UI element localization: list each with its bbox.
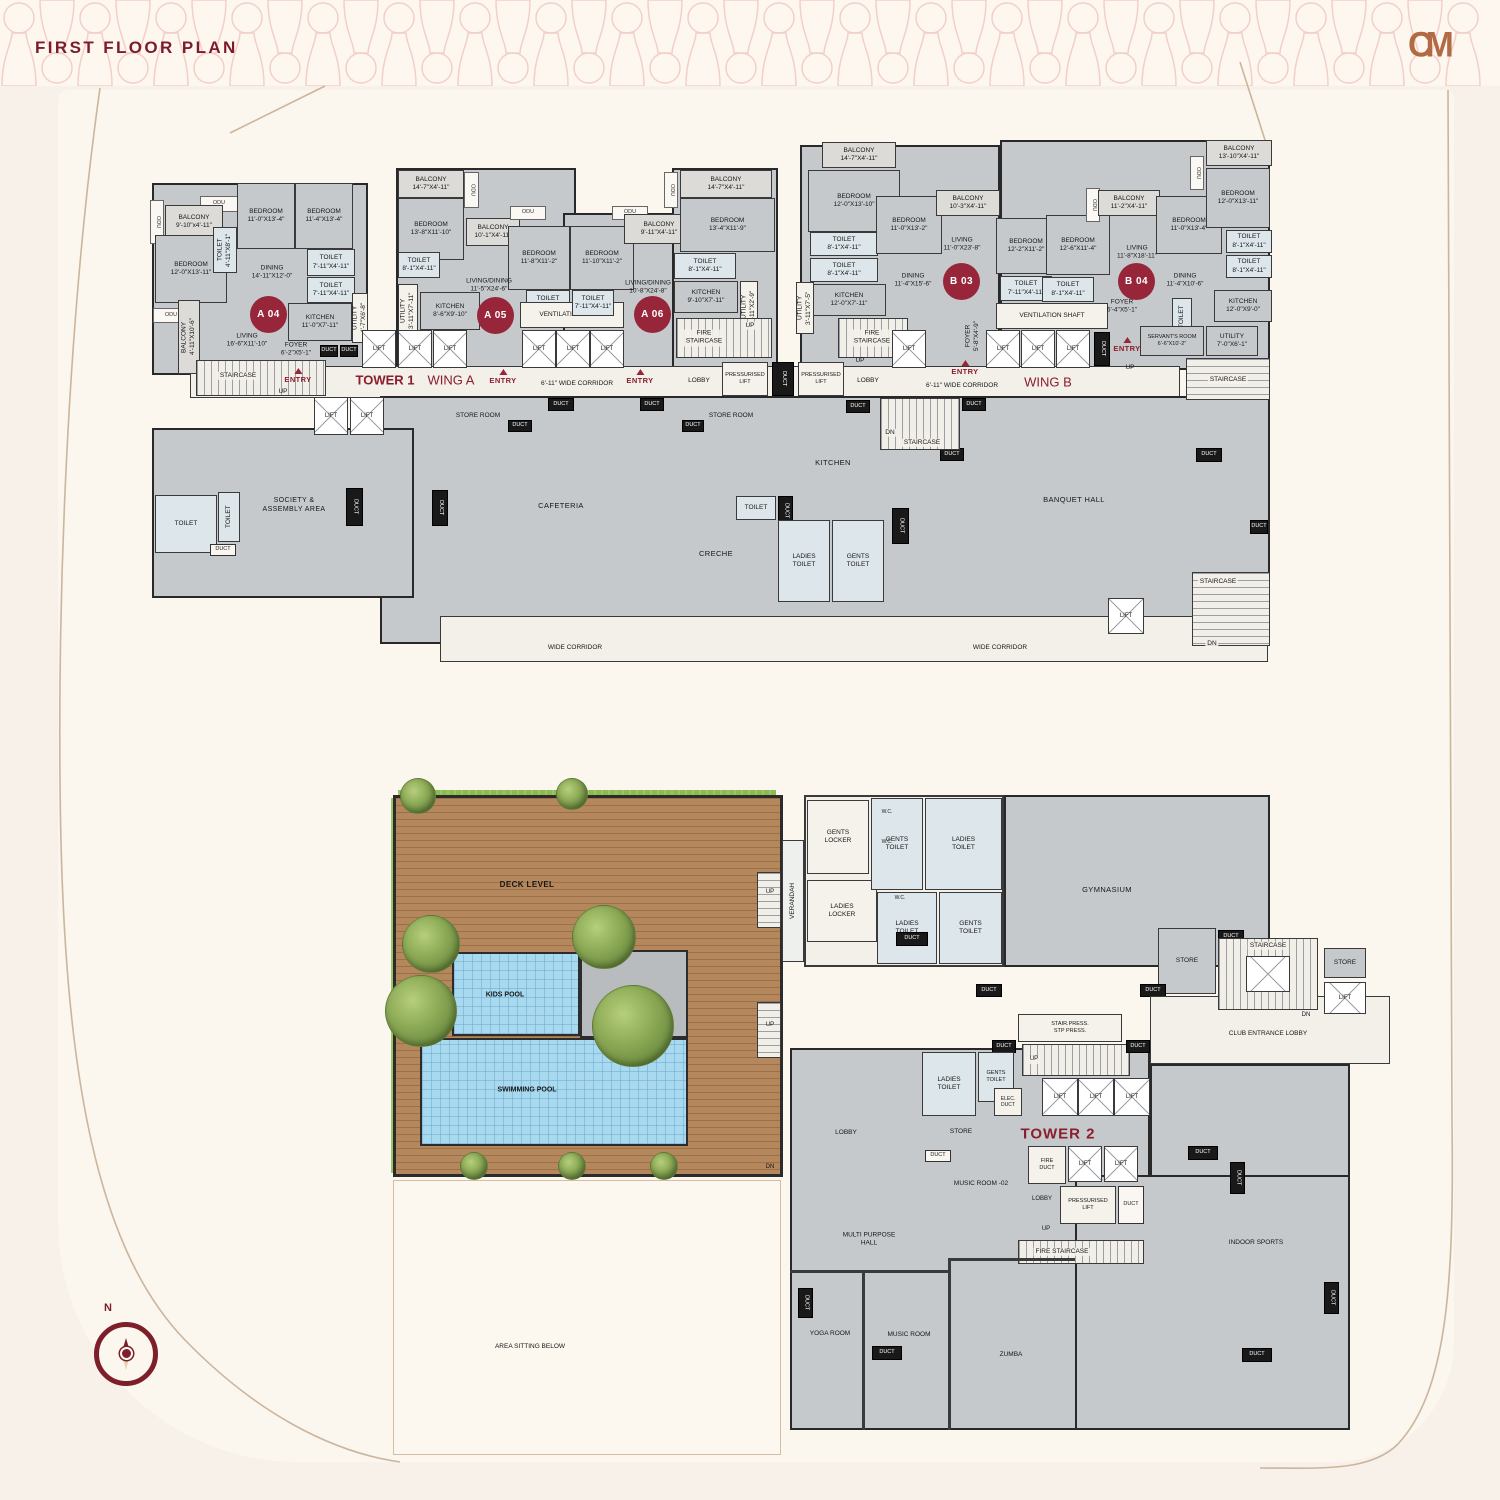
fire-staircase-label: FIRE STAIRCASE — [852, 330, 892, 347]
dn-label: DN — [883, 429, 896, 437]
lift-label: LIFT — [325, 413, 337, 419]
lift: LIFT — [1042, 1078, 1078, 1116]
fire-staircase-label: FIRE STAIRCASE — [684, 330, 724, 347]
lift: LIFT — [1324, 982, 1366, 1014]
wc-label: W.C. — [882, 809, 893, 816]
duct: DUCT — [1250, 520, 1268, 534]
a06-toilet-1: TOILET 7'-11"X4'-11" — [572, 290, 614, 316]
b03-dining: DINING 11'-4"X15'-6" — [895, 273, 932, 290]
b03-toilet-1: TOILET 8'-1"X4'-11" — [810, 232, 878, 256]
entry-arrow-icon — [1123, 337, 1131, 343]
up-label: UP — [766, 889, 774, 897]
tree — [402, 915, 460, 973]
ladies-toilet-1: LADIES TOILET — [925, 798, 1002, 890]
b04-toilet-4: TOILET 8'-1"X4'-11" — [1226, 255, 1272, 278]
lift-label: LIFT — [1090, 1094, 1102, 1100]
ladies-toilet-2: LADIES TOILET — [877, 892, 937, 964]
b04-bedroom-4: BEDROOM 12'-0"X13'-11" — [1206, 168, 1270, 228]
lift: LIFT — [892, 330, 926, 368]
duct: DUCT — [1094, 332, 1110, 366]
banquet-hall: BANQUET HALL — [1043, 495, 1105, 505]
gym-store: STORE — [1158, 928, 1216, 994]
swimming-pool-label: SWIMMING POOL — [497, 1085, 556, 1094]
wide-corridor-label: WIDE CORRIDOR — [548, 644, 602, 652]
gents-toilet-common: GENTS TOILET — [832, 520, 884, 602]
kitchen-common: KITCHEN — [815, 458, 851, 468]
a05-toilet-1: TOILET 8'-1"X4'-11" — [398, 252, 440, 278]
tree — [556, 778, 588, 810]
duct: DUCT — [1188, 1146, 1218, 1160]
corridor-b-label: 6'-11" WIDE CORRIDOR — [926, 382, 998, 390]
lift: LIFT — [1104, 1146, 1138, 1182]
kids-pool-label: KIDS POOL — [486, 990, 525, 999]
tree — [400, 778, 436, 814]
a04-foyer: FOYER 6'-2"X5'-1" — [281, 342, 311, 359]
unit-badge-b03: B 03 — [943, 263, 980, 300]
b03-kitchen: KITCHEN 12'-0"X7'-11" — [812, 284, 886, 316]
a06-balcony-2: BALCONY 14'-7"X4'-11" — [680, 170, 772, 198]
lift: LIFT — [1078, 1078, 1114, 1116]
lift: LIFT — [1068, 1146, 1102, 1182]
entry-marker: ENTRY — [626, 369, 653, 385]
a04-bedroom-1: BEDROOM 11'-0"X13'-4" — [237, 183, 295, 249]
store-room-1: STORE ROOM — [456, 412, 500, 420]
b03-toilet-2: TOILET 8'-1"X4'-11" — [810, 258, 878, 282]
up-label: UP — [766, 1022, 774, 1030]
duct: DUCT — [896, 932, 928, 946]
lift-label: LIFT — [1054, 1094, 1066, 1100]
creche: CRECHE — [699, 549, 733, 559]
duct: DUCT — [772, 362, 794, 396]
lift: LIFT — [350, 397, 384, 435]
b03-balcony-2: BALCONY 10'-3"X4'-11" — [936, 190, 1000, 216]
lift: LIFT — [556, 330, 590, 368]
a06-kitchen: KITCHEN 9'-10"X7'-11" — [674, 281, 738, 313]
entry-label: ENTRY — [284, 375, 311, 384]
b03-living: LIVING 11'-0"X23'-8" — [944, 237, 981, 254]
area-sitting-below — [393, 1180, 781, 1455]
store-label: STORE — [950, 1128, 972, 1136]
stair-press-box: STAIR.PRESS. STP PRESS. — [1018, 1014, 1122, 1042]
a04-toilet-1: TOILET 4'-11"X8'-1" — [213, 227, 237, 273]
b04-kitchen: KITCHEN 12'-0"X9'-0" — [1214, 290, 1272, 322]
up-label: UP — [1125, 364, 1134, 372]
b04-toilet-1: TOILET 8'-1"X4'-11" — [1042, 277, 1094, 302]
club-stair-core — [1246, 956, 1290, 992]
lift: LIFT — [1114, 1078, 1150, 1116]
duct: DUCT — [892, 508, 909, 544]
b04-balcony-1: BALCONY 11'-2"X4'-11" — [1098, 190, 1160, 216]
wide-corridor-label: WIDE CORRIDOR — [973, 644, 1027, 652]
lift-label: LIFT — [373, 346, 385, 352]
lift-label: LIFT — [567, 346, 579, 352]
a04-toilet-2: TOILET 7'-11"X4'-11" — [307, 249, 355, 276]
lift: LIFT — [398, 330, 432, 368]
wall — [948, 1258, 1075, 1261]
lobby-label: LOBBY — [857, 377, 879, 385]
common-toilet-2: TOILET — [218, 492, 240, 542]
duct: DUCT — [432, 490, 448, 526]
lift-label: LIFT — [1339, 995, 1351, 1001]
lift: LIFT — [1056, 330, 1090, 368]
area-sitting-below-label: AREA SITTING BELOW — [495, 1343, 565, 1351]
entry-marker: ENTRY — [284, 368, 311, 384]
a05-balcony-1: BALCONY 14'-7"X4'-11" — [398, 170, 464, 198]
lift-label: LIFT — [601, 346, 613, 352]
duct: DUCT — [508, 420, 532, 432]
staircase-label: STAIRCASE — [1248, 942, 1288, 950]
yoga-room: YOGA ROOM — [810, 1330, 850, 1338]
b04-foyer: FOYER 6'-4"X5'-1" — [1107, 299, 1137, 316]
a05-bedroom-2: BEDROOM 11'-8"X11'-2" — [508, 226, 570, 290]
entry-marker: ENTRY — [489, 369, 516, 385]
lift-label: LIFT — [409, 346, 421, 352]
gymnasium-label: GYMNASIUM — [1082, 885, 1132, 895]
up-label: UP — [855, 357, 864, 365]
lift: LIFT — [522, 330, 556, 368]
b04-balcony-2: BALCONY 13'-10"X4'-11" — [1206, 140, 1272, 166]
a05-bedroom-1: BEDROOM 13'-8"X11'-10" — [398, 198, 464, 260]
duct: DUCT — [640, 398, 664, 411]
lift-label: LIFT — [361, 413, 373, 419]
up-label: UP — [278, 388, 287, 396]
gents-toilet-2: GENTS TOILET — [939, 892, 1002, 964]
duct: DUCT — [346, 488, 363, 526]
ladies-toilet-common: LADIES TOILET — [778, 520, 830, 602]
page-title: FIRST FLOOR PLAN — [35, 38, 238, 58]
lift-label: LIFT — [903, 346, 915, 352]
odu-unit: ODU — [510, 206, 546, 220]
duct: DUCT — [976, 984, 1002, 997]
b04-bedroom-1: BEDROOM 12'-6"X11'-4" — [1046, 215, 1110, 275]
indoor-sports: INDOOR SPORTS — [1229, 1239, 1283, 1247]
common-toilet: TOILET — [155, 495, 217, 553]
cm-logo-monogram: CM — [1408, 25, 1447, 66]
tree — [460, 1152, 488, 1180]
odu-unit: ODU — [1190, 156, 1204, 190]
multi-purpose-hall: MULTI PURPOSE HALL — [843, 1232, 896, 1249]
dn-label: DN — [1205, 640, 1218, 648]
duct: DUCT — [548, 398, 574, 411]
ladies-locker: LADIES LOCKER — [807, 880, 877, 942]
duct: DUCT — [1126, 1040, 1150, 1053]
wc-label: W.C. — [882, 839, 893, 846]
wc-label: W.C. — [895, 895, 906, 902]
lobby-label: LOBBY — [688, 377, 710, 385]
up-label: UP — [743, 322, 756, 330]
t2-ladies-toilet: LADIES TOILET — [922, 1052, 976, 1116]
wing-a-label: WING A — [428, 373, 475, 390]
club-entrance-lobby: CLUB ENTRANCE LOBBY — [1229, 1030, 1307, 1038]
tree — [592, 985, 674, 1067]
a06-living-dining: LIVING/DINING 10'-8"X24'-8" — [625, 280, 671, 297]
b04-utility: UTILITY 7'-0"X6'-1" — [1206, 326, 1258, 356]
entry-label: ENTRY — [1113, 344, 1140, 353]
entry-arrow-icon — [294, 368, 302, 374]
duct: DUCT — [846, 400, 870, 413]
lift-label: LIFT — [533, 346, 545, 352]
entry-marker: ENTRY — [1113, 337, 1140, 353]
duct: DUCT — [320, 345, 338, 357]
pressurised-lift-2: PRESSURISED LIFT — [798, 362, 844, 396]
t2-pressurised-lift: PRESSURISED LIFT — [1060, 1186, 1116, 1224]
entry-label: ENTRY — [626, 376, 653, 385]
tower1-label: TOWER 1 — [356, 373, 415, 390]
a04-living: LIVING 16'-6"X11'-10" — [227, 333, 268, 350]
deck-stair-up-1 — [757, 872, 781, 928]
lift: LIFT — [1021, 330, 1055, 368]
music-room: MUSIC ROOM — [888, 1331, 931, 1339]
duct: DUCT — [340, 345, 358, 357]
dn-label: DN — [1302, 1012, 1311, 1020]
duct: DUCT — [210, 544, 236, 556]
wall — [948, 1260, 951, 1430]
entry-label: ENTRY — [951, 367, 978, 376]
dn-label: DN — [766, 1164, 775, 1172]
duct: DUCT — [682, 420, 704, 432]
odu-unit: ODU — [464, 172, 479, 208]
unit-badge-b04: B 04 — [1118, 263, 1155, 300]
duct: DUCT — [925, 1150, 951, 1162]
entry-arrow-icon — [636, 369, 644, 375]
lift-label: LIFT — [1126, 1094, 1138, 1100]
lift: LIFT — [433, 330, 467, 368]
tree — [572, 905, 636, 969]
cafeteria: CAFETERIA — [538, 501, 584, 511]
ventilation-shaft-b: VENTILATION SHAFT — [996, 303, 1108, 329]
unit-badge-a06: A 06 — [634, 296, 671, 333]
fire-staircase-label: FIRE STAIRCASE — [1034, 1248, 1091, 1256]
staircase-label: STAIRCASE — [218, 372, 258, 380]
duct: DUCT — [1118, 1186, 1144, 1224]
deck-level-label: DECK LEVEL — [500, 880, 555, 890]
lift: LIFT — [1108, 598, 1144, 634]
gents-toilet-1: GENTS TOILET — [871, 798, 923, 890]
b03-balcony-1: BALCONY 14'-7"X4'-11" — [822, 142, 896, 168]
a04-kitchen: KITCHEN 11'-0"X7'-11" — [288, 303, 352, 341]
b04-dining: DINING 11'-4"X10'-6" — [1167, 273, 1204, 290]
lift: LIFT — [314, 397, 348, 435]
lift: LIFT — [590, 330, 624, 368]
b03-foyer: FOYER 5'-8"X4'-9" — [965, 321, 982, 351]
corridor-a-label: 6'-11" WIDE CORRIDOR — [541, 380, 613, 388]
duct: DUCT — [1230, 1162, 1245, 1194]
fire-duct: FIRE DUCT — [1028, 1146, 1066, 1184]
staircase-label: STAIRCASE — [902, 439, 942, 447]
unit-badge-a05: A 05 — [477, 297, 514, 334]
gents-locker: GENTS LOCKER — [807, 800, 869, 874]
entry-arrow-icon — [961, 360, 969, 366]
tower2-label: TOWER 2 — [1020, 1124, 1095, 1144]
lift-label: LIFT — [997, 346, 1009, 352]
staircase-label: STAIRCASE — [1198, 578, 1238, 586]
wall — [790, 1270, 950, 1273]
society-assembly-area: SOCIETY & ASSEMBLY AREA — [263, 496, 326, 514]
entry-label: ENTRY — [489, 376, 516, 385]
common-toilet-3: TOILET — [736, 496, 776, 520]
a06-bedroom-2: BEDROOM 13'-4"X11'-9" — [680, 198, 775, 252]
store-small: STORE — [1324, 948, 1366, 978]
tree — [650, 1152, 678, 1180]
b03-bedroom-2: BEDROOM 11'-0"X13'-2" — [876, 196, 942, 254]
b03-utility: UTILITY 3'-11"X7'-5" — [796, 282, 814, 334]
duct: DUCT — [1324, 1282, 1339, 1314]
indoor-sports-base — [1075, 1175, 1350, 1430]
lift: LIFT — [362, 330, 396, 368]
deck-stair-up-2 — [757, 1002, 781, 1058]
duct: DUCT — [1196, 448, 1222, 462]
elec-duct: ELEC. DUCT — [994, 1088, 1022, 1116]
floor-plan-canvas: FIRST FLOOR PLAN CM ODU ODU BALCONY 9'-1… — [0, 0, 1500, 1500]
b04-toilet-3: TOILET 8'-1"X4'-11" — [1226, 230, 1272, 253]
lobby-small-label: LOBBY — [1032, 1196, 1052, 1204]
tree — [385, 975, 457, 1047]
music-room-02: MUSIC ROOM -02 — [954, 1180, 1008, 1188]
lift-label: LIFT — [444, 346, 456, 352]
pressurised-lift-1: PRESSURISED LIFT — [722, 362, 768, 396]
b04-servants-room: SERVANT'S ROOM 6'-6"X10'-2" — [1140, 326, 1204, 356]
up-label: UP — [1028, 1056, 1040, 1064]
odu-unit: ODU — [664, 172, 678, 208]
indoor-sports-base-upper — [1150, 1064, 1350, 1179]
duct: DUCT — [962, 398, 986, 411]
lift-label: LIFT — [1079, 1161, 1091, 1167]
lift-label: LIFT — [1067, 346, 1079, 352]
duct: DUCT — [798, 1288, 813, 1318]
a04-bedroom-2: BEDROOM 11'-4"X13'-4" — [295, 183, 353, 249]
a04-dining: DINING 14'-11"X12'-0" — [252, 265, 293, 282]
entry-marker: ENTRY — [951, 360, 978, 376]
unit-badge-a04: A 04 — [250, 296, 287, 333]
b04-living: LIVING 11'-8"X18'-11" — [1117, 245, 1157, 262]
lift-label: LIFT — [1120, 613, 1132, 619]
staircase-label: STAIRCASE — [1208, 376, 1248, 384]
lift: LIFT — [986, 330, 1020, 368]
a05-kitchen: KITCHEN 8'-6"X9'-10" — [420, 292, 480, 330]
lift-label: LIFT — [1115, 1161, 1127, 1167]
tree — [558, 1152, 586, 1180]
zumba: ZUMBA — [1000, 1351, 1023, 1359]
a04-toilet-3: TOILET 7'-11"X4'-11" — [307, 277, 355, 303]
lift-label: LIFT — [1032, 346, 1044, 352]
wall — [862, 1272, 865, 1430]
a06-toilet-2: TOILET 8'-1"X4'-11" — [674, 253, 736, 279]
wing-b-label: WING B — [1024, 375, 1072, 392]
verandah: VERANDAH — [782, 840, 804, 962]
up-label: UP — [1042, 1226, 1050, 1234]
duct: DUCT — [1242, 1348, 1272, 1362]
duct: DUCT — [872, 1346, 902, 1360]
store-room-2: STORE ROOM — [709, 412, 753, 420]
entry-arrow-icon — [499, 369, 507, 375]
lobby-label: LOBBY — [835, 1129, 857, 1137]
